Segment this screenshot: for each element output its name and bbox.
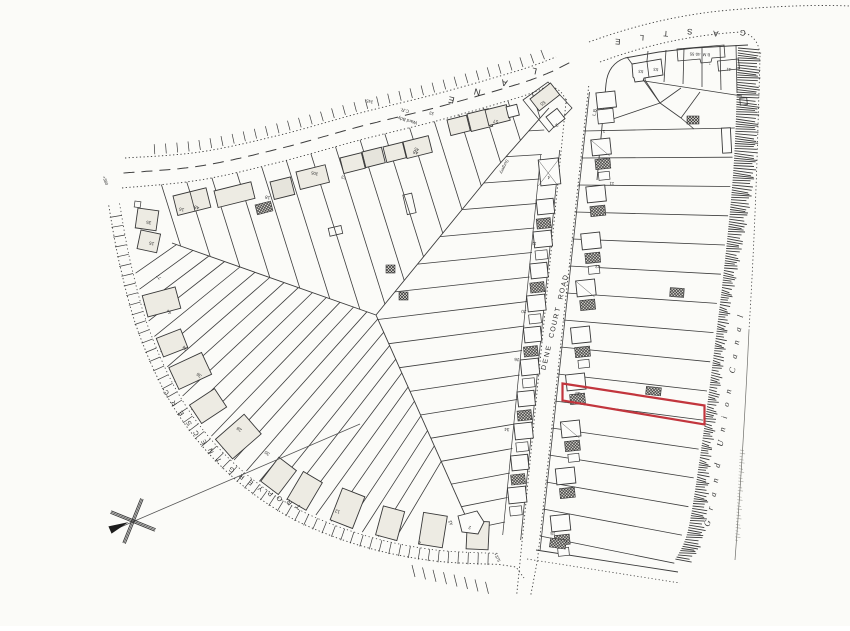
svg-text:35: 35 (575, 391, 581, 396)
svg-text:T: T (663, 29, 669, 38)
svg-text:53: 53 (638, 69, 644, 74)
svg-text:S: S (687, 27, 693, 36)
svg-text:53: 53 (653, 67, 659, 72)
svg-text:26: 26 (514, 357, 520, 362)
svg-text:34: 34 (504, 427, 510, 432)
svg-text:20: 20 (521, 309, 527, 314)
svg-text:1: 1 (602, 129, 605, 134)
svg-text:C: C (739, 28, 746, 37)
svg-text:15: 15 (550, 531, 556, 536)
svg-text:E: E (615, 37, 621, 46)
svg-text:12: 12 (531, 241, 537, 246)
svg-text:↑: ↑ (708, 60, 711, 66)
svg-text:43: 43 (595, 264, 601, 269)
svg-text:11: 11 (609, 181, 615, 186)
